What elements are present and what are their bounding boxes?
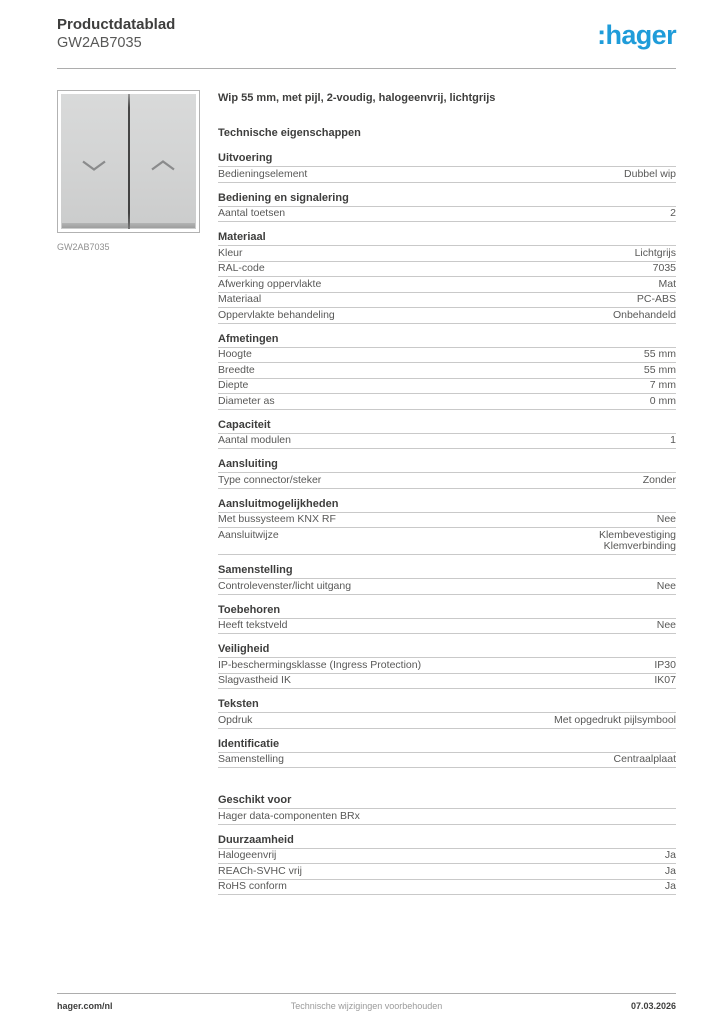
spec-section: Uitvoering Bedieningselement Dubbel wip — [218, 152, 676, 183]
product-description: Wip 55 mm, met pijl, 2-voudig, halogeenv… — [218, 92, 676, 105]
spec-section-title: Aansluiting — [218, 458, 676, 473]
spec-row-label: Type connector/steker — [218, 475, 331, 487]
spec-row: Aansluitwijze Klembevestiging Klemverbin… — [218, 528, 676, 555]
spec-row-value: Ja — [665, 850, 676, 862]
hager-logo: :hager — [597, 15, 676, 55]
main-content: GW2AB7035 Wip 55 mm, met pijl, 2-voudig,… — [57, 90, 676, 895]
spec-section-title: Teksten — [218, 698, 676, 713]
switch-divider — [128, 94, 130, 229]
spec-section: Afmetingen Hoogte 55 mm Breedte 55 mm Di… — [218, 333, 676, 410]
spec-row-value: PC-ABS — [637, 294, 676, 306]
spec-row: Materiaal PC-ABS — [218, 293, 676, 309]
spec-rows: Samenstelling Centraalplaat — [218, 753, 676, 769]
footer: hager.com/nl Technische wijzigingen voor… — [57, 993, 676, 1024]
page-title: Productdatablad — [57, 15, 175, 34]
spec-row-value: Ja — [665, 866, 676, 878]
spec-row: Oppervlakte behandeling Onbehandeld — [218, 308, 676, 324]
spec-section: Veiligheid IP-beschermingsklasse (Ingres… — [218, 643, 676, 689]
spec-row: Slagvastheid IK IK07 — [218, 674, 676, 690]
header-divider — [57, 68, 676, 69]
chevron-down-icon — [78, 158, 110, 178]
spec-row-value: Zonder — [643, 475, 676, 487]
spec-row: Kleur Lichtgrijs — [218, 246, 676, 262]
spec-row: Aantal toetsen 2 — [218, 207, 676, 223]
spec-row-value: 7035 — [653, 263, 676, 275]
spec-section: Duurzaamheid Halogeenvrij Ja REACh-SVHC … — [218, 834, 676, 896]
spec-row-value: 7 mm — [650, 380, 676, 392]
spec-rows: Opdruk Met opgedrukt pijlsymbool — [218, 713, 676, 729]
rocker-switch-illustration — [61, 94, 196, 229]
spec-row-label: Bedieningselement — [218, 169, 317, 181]
spec-rows: IP-beschermingsklasse (Ingress Protectio… — [218, 658, 676, 689]
footer-date: 07.03.2026 — [631, 1001, 676, 1011]
spec-row: Heeft tekstveld Nee — [218, 619, 676, 635]
spec-section-title: Duurzaamheid — [218, 834, 676, 849]
spec-row: Halogeenvrij Ja — [218, 849, 676, 865]
spec-section: Bediening en signalering Aantal toetsen … — [218, 192, 676, 223]
spec-row-value: Nee — [657, 620, 676, 632]
spec-row-value: 2 — [670, 208, 676, 220]
spec-section: Aansluiting Type connector/steker Zonder — [218, 458, 676, 489]
specifications-column: Wip 55 mm, met pijl, 2-voudig, halogeenv… — [218, 90, 676, 895]
spec-row: IP-beschermingsklasse (Ingress Protectio… — [218, 658, 676, 674]
spec-row-label: Diepte — [218, 380, 258, 392]
spec-row: Samenstelling Centraalplaat — [218, 753, 676, 769]
spec-row-value: Lichtgrijs — [635, 248, 676, 260]
spec-row-value: Centraalplaat — [614, 754, 676, 766]
spec-row-label: Afwerking oppervlakte — [218, 279, 331, 291]
spec-section-title: Afmetingen — [218, 333, 676, 348]
spec-row: RAL-code 7035 — [218, 262, 676, 278]
spec-row-label: Breedte — [218, 365, 265, 377]
spec-section-title: Capaciteit — [218, 419, 676, 434]
spec-row: Bedieningselement Dubbel wip — [218, 167, 676, 183]
spec-section: Materiaal Kleur Lichtgrijs RAL-code 7035… — [218, 231, 676, 324]
spec-section-title: Aansluitmogelijkheden — [218, 498, 676, 513]
spec-row: Breedte 55 mm — [218, 363, 676, 379]
product-image — [57, 90, 200, 233]
spec-row-value: IP30 — [654, 660, 676, 672]
spec-row: Diameter as 0 mm — [218, 394, 676, 410]
spec-section: Capaciteit Aantal modulen 1 — [218, 419, 676, 450]
spec-row-label: Heeft tekstveld — [218, 620, 297, 632]
spec-rows: Controlevenster/licht uitgang Nee — [218, 579, 676, 595]
spec-row: Type connector/steker Zonder — [218, 473, 676, 489]
spec-row: RoHS conform Ja — [218, 880, 676, 896]
spec-section: Toebehoren Heeft tekstveld Nee — [218, 604, 676, 635]
spec-row-value: Mat — [658, 279, 676, 291]
footer-disclaimer: Technische wijzigingen voorbehouden — [291, 1001, 443, 1011]
spec-row-label: REACh-SVHC vrij — [218, 866, 312, 878]
spec-section-title: Toebehoren — [218, 604, 676, 619]
product-code: GW2AB7035 — [57, 34, 175, 53]
spec-row: Met bussysteem KNX RF Nee — [218, 513, 676, 529]
spec-row: Controlevenster/licht uitgang Nee — [218, 579, 676, 595]
spec-row-label: Diameter as — [218, 396, 285, 408]
spec-row-label: Opdruk — [218, 715, 262, 727]
spec-row-value: Onbehandeld — [613, 310, 676, 322]
spec-row: Aantal modulen 1 — [218, 434, 676, 450]
product-datasheet-page: Productdatablad GW2AB7035 :hager — [0, 0, 724, 1024]
footer-row: hager.com/nl Technische wijzigingen voor… — [57, 1001, 676, 1011]
spec-row: REACh-SVHC vrij Ja — [218, 864, 676, 880]
spec-section-title: Samenstelling — [218, 564, 676, 579]
spec-row-value: Dubbel wip — [624, 169, 676, 181]
spec-row-label: RAL-code — [218, 263, 275, 275]
spec-rows: Heeft tekstveld Nee — [218, 619, 676, 635]
spec-sections: Uitvoering Bedieningselement Dubbel wip … — [218, 152, 676, 895]
switch-right-button — [130, 94, 197, 229]
spec-row-label: Slagvastheid IK — [218, 675, 301, 687]
spec-row-value: 1 — [670, 435, 676, 447]
spec-row-label: Aansluitwijze — [218, 530, 289, 542]
spec-row-label: Hager data-componenten BRx — [218, 811, 370, 823]
spec-row-label: Controlevenster/licht uitgang — [218, 581, 361, 593]
spec-section-title: Bediening en signalering — [218, 192, 676, 207]
spec-rows: Aantal modulen 1 — [218, 434, 676, 450]
spec-section: Geschikt voor Hager data-componenten BRx — [218, 794, 676, 825]
spec-rows: Kleur Lichtgrijs RAL-code 7035 Afwerking… — [218, 246, 676, 324]
switch-left-button — [61, 94, 128, 229]
spec-section: Teksten Opdruk Met opgedrukt pijlsymbool — [218, 698, 676, 729]
spec-row: Afwerking oppervlakte Mat — [218, 277, 676, 293]
spec-row-value: Nee — [657, 514, 676, 526]
spec-row: Diepte 7 mm — [218, 379, 676, 395]
spec-rows: Met bussysteem KNX RF Nee Aansluitwijze … — [218, 513, 676, 556]
spec-section-title: Materiaal — [218, 231, 676, 246]
header: Productdatablad GW2AB7035 :hager — [57, 0, 676, 55]
spec-rows: Bedieningselement Dubbel wip — [218, 167, 676, 183]
spec-row-value: 0 mm — [650, 396, 676, 408]
footer-website-link[interactable]: hager.com/nl — [57, 1001, 113, 1011]
spec-row-value: 55 mm — [644, 349, 676, 361]
spec-section: Aansluitmogelijkheden Met bussysteem KNX… — [218, 498, 676, 556]
spec-row-value: Met opgedrukt pijlsymbool — [554, 715, 676, 727]
spec-section-title: Uitvoering — [218, 152, 676, 167]
spec-rows: Hager data-componenten BRx — [218, 809, 676, 825]
spec-row-label: Halogeenvrij — [218, 850, 286, 862]
spec-row-value: IK07 — [654, 675, 676, 687]
image-caption: GW2AB7035 — [57, 242, 200, 252]
spec-section: Identificatie Samenstelling Centraalplaa… — [218, 738, 676, 769]
spec-row-label: Met bussysteem KNX RF — [218, 514, 346, 526]
spec-row: Hoogte 55 mm — [218, 348, 676, 364]
spec-rows: Hoogte 55 mm Breedte 55 mm Diepte 7 mm D… — [218, 348, 676, 410]
spec-row: Hager data-componenten BRx — [218, 809, 676, 825]
spec-rows: Aantal toetsen 2 — [218, 207, 676, 223]
spec-row-label: Kleur — [218, 248, 253, 260]
spec-row-label: Materiaal — [218, 294, 271, 306]
spec-rows: Type connector/steker Zonder — [218, 473, 676, 489]
spec-row-label: Samenstelling — [218, 754, 294, 766]
spec-row-label: Oppervlakte behandeling — [218, 310, 345, 322]
spec-row-value: Klembevestiging Klemverbinding — [599, 530, 676, 553]
footer-divider — [57, 993, 676, 994]
spec-section: Samenstelling Controlevenster/licht uitg… — [218, 564, 676, 595]
spec-row-value: 55 mm — [644, 365, 676, 377]
spec-rows: Halogeenvrij Ja REACh-SVHC vrij Ja RoHS … — [218, 849, 676, 896]
spec-section-title: Identificatie — [218, 738, 676, 753]
spec-row-label: Aantal modulen — [218, 435, 301, 447]
tech-properties-title: Technische eigenschappen — [218, 127, 676, 140]
product-image-column: GW2AB7035 — [57, 90, 200, 895]
spec-section-title: Geschikt voor — [218, 794, 676, 809]
spec-row-label: RoHS conform — [218, 881, 297, 893]
spec-row-label: IP-beschermingsklasse (Ingress Protectio… — [218, 660, 431, 672]
spec-row-value: Nee — [657, 581, 676, 593]
spec-row-label: Aantal toetsen — [218, 208, 295, 220]
spec-row-value: Ja — [665, 881, 676, 893]
header-titles: Productdatablad GW2AB7035 — [57, 15, 175, 53]
spec-section-title: Veiligheid — [218, 643, 676, 658]
spec-row: Opdruk Met opgedrukt pijlsymbool — [218, 713, 676, 729]
chevron-up-icon — [147, 158, 179, 178]
spec-row-label: Hoogte — [218, 349, 262, 361]
